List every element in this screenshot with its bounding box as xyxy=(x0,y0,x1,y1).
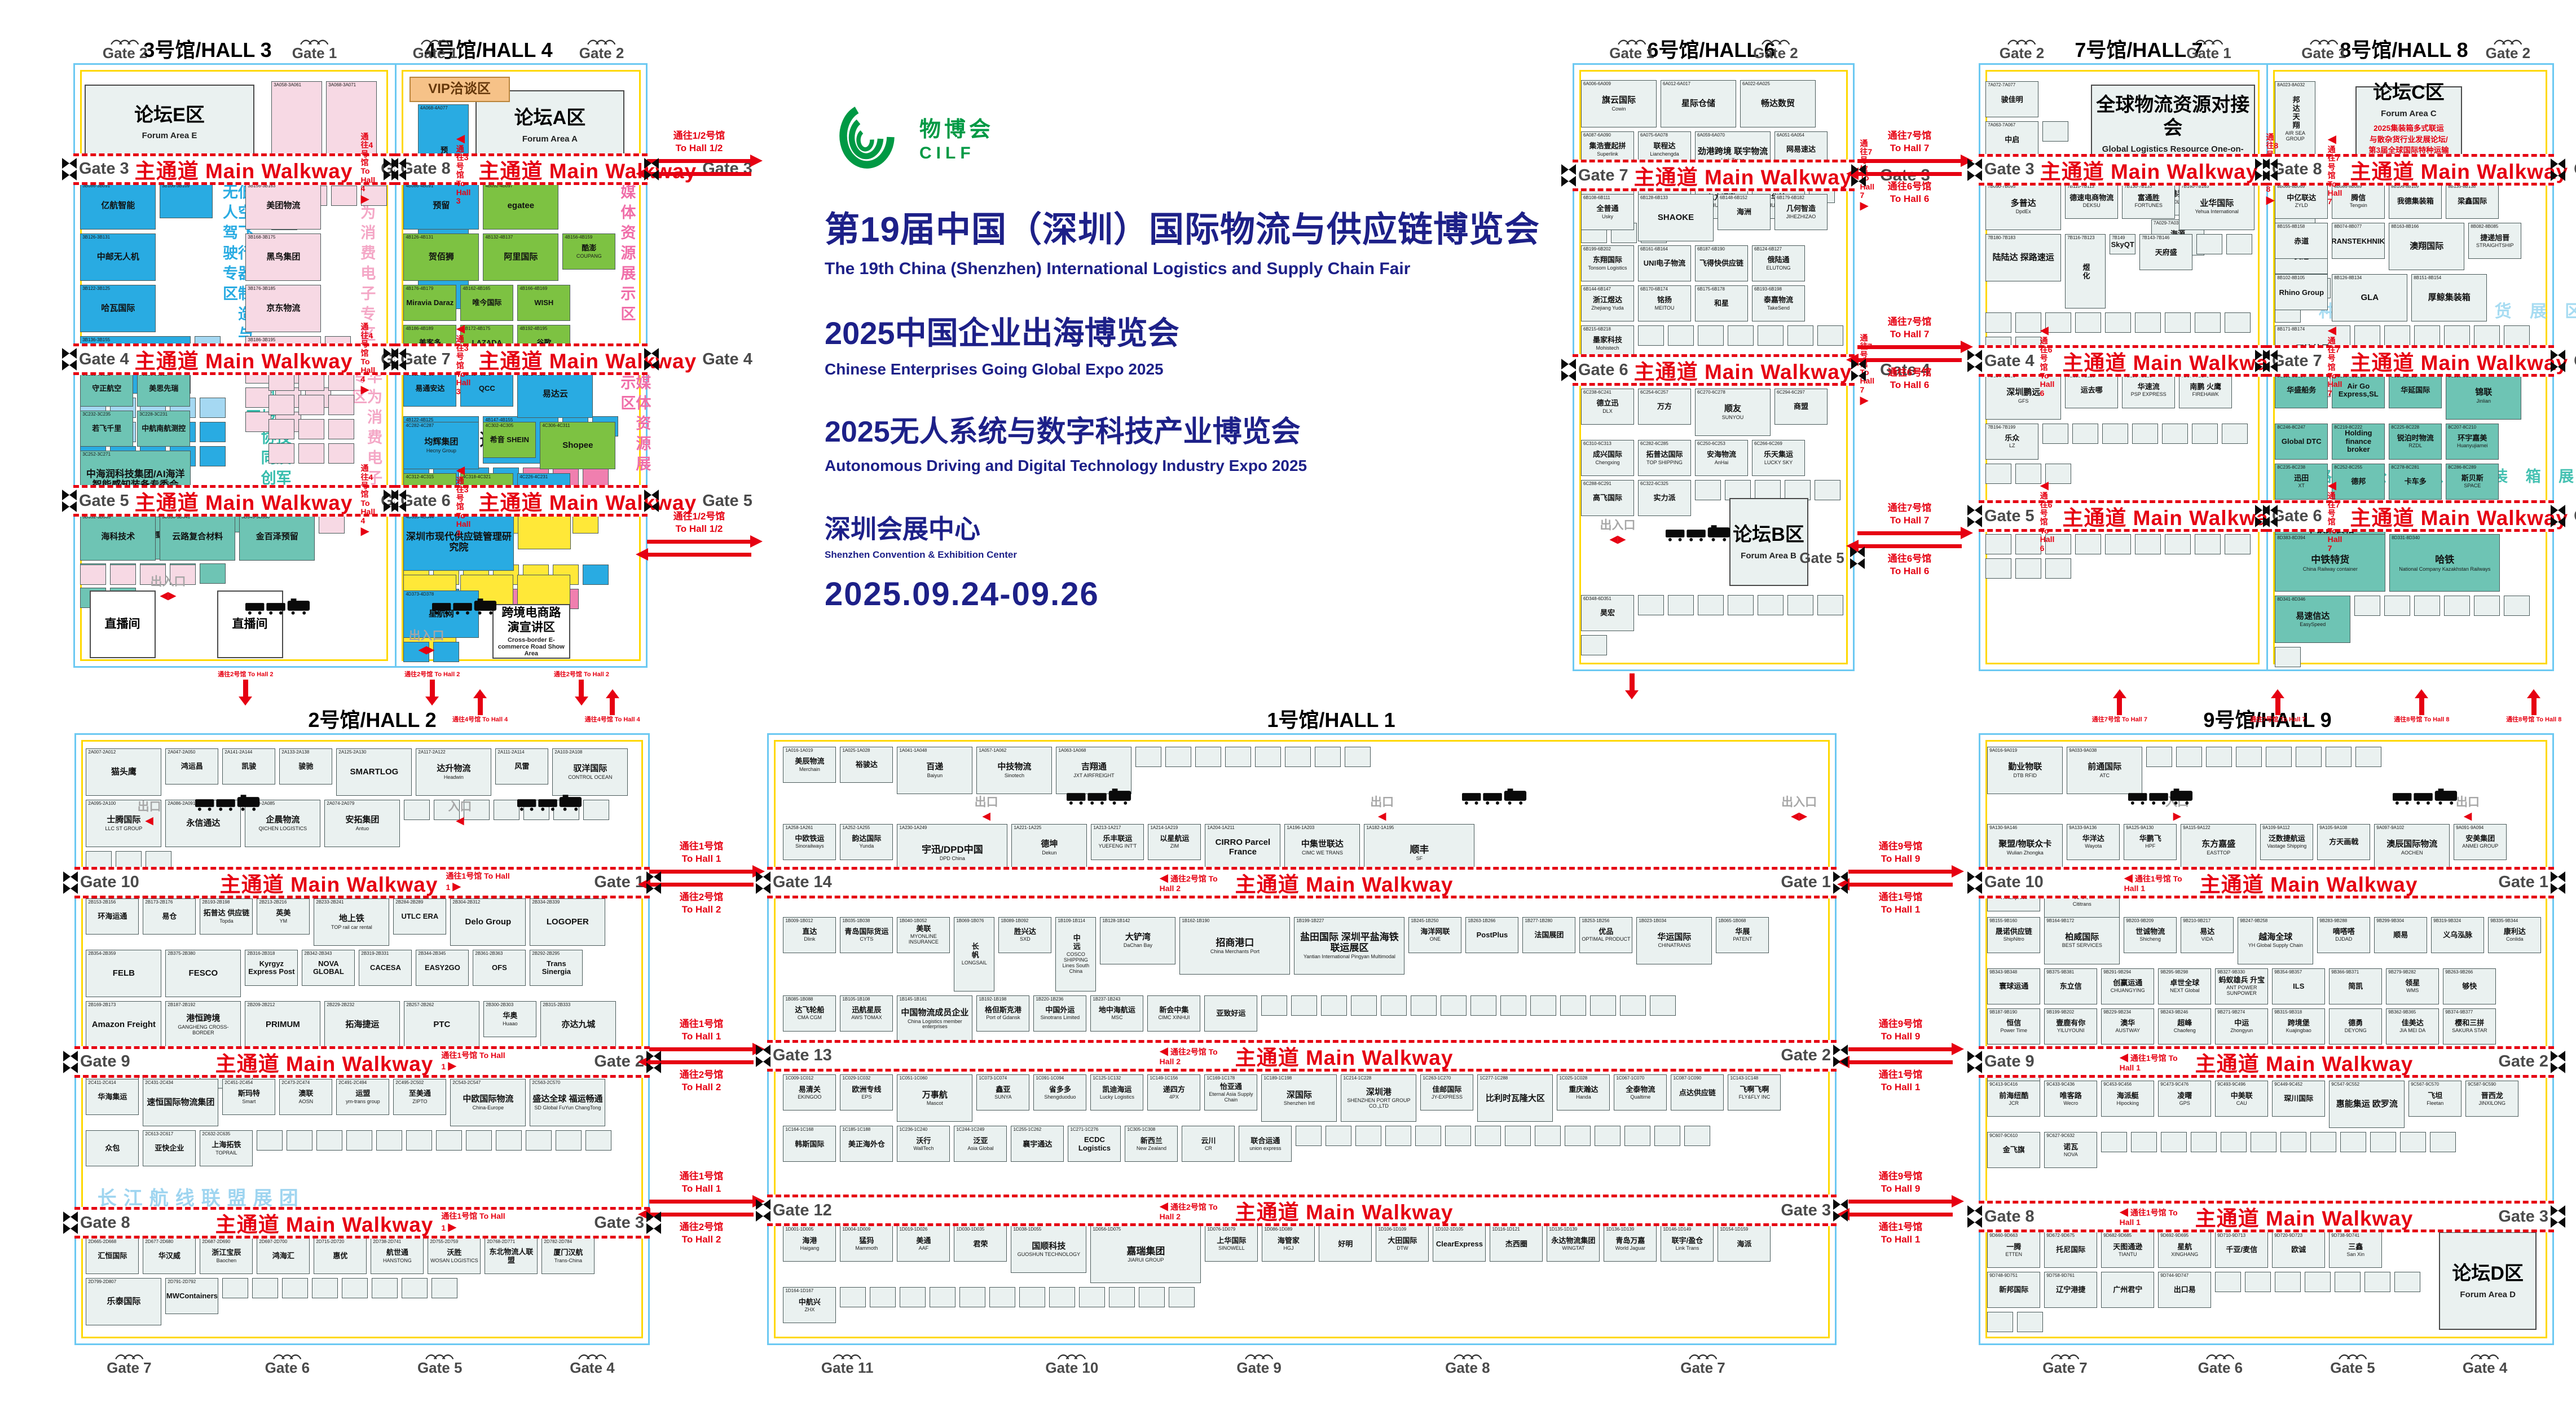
booth: 2B173-2B176易仓 xyxy=(143,898,196,935)
booth-code: 2B153-2B156 xyxy=(88,900,137,905)
booth-name: 义乌泓脉 xyxy=(2443,931,2472,940)
booth-name: 晋西龙 xyxy=(2481,1092,2503,1100)
walkway-gate-label: Gate 4 xyxy=(1979,352,2040,371)
booth-code: 1C277-1C288 xyxy=(1479,1076,1551,1081)
gate-label: Gate 5 xyxy=(417,1359,463,1377)
bowtie-gate-icon xyxy=(644,489,659,513)
booth: 9B279-9B282领星WMS xyxy=(2386,968,2439,1004)
booth-band: 9B155-9B160晟诺供应链ShipNitro9B164-9B172柏威国际… xyxy=(1987,917,2545,1046)
booth: 1C029-1C032欧洲专线EPS xyxy=(840,1074,893,1110)
booth-code: 1D154-1D159 xyxy=(1720,1227,1769,1232)
booth-code: 1B162-1B190 xyxy=(1182,919,1288,923)
booth-name: 深圳港 xyxy=(1366,1088,1392,1098)
booth xyxy=(1381,995,1407,1016)
booth-name-en: WOSAN LOGISTICS xyxy=(430,1258,478,1264)
gate-awning-icon xyxy=(2339,1349,2367,1359)
booth-name-en: OPTIMAL PRODUCT xyxy=(1582,937,1630,942)
booth xyxy=(1345,747,1371,767)
direction-arrow-icon xyxy=(647,540,751,544)
gate-awning-icon xyxy=(1454,1349,1482,1359)
booth xyxy=(2176,747,2202,767)
booth: 3C232-3C235若飞千里 xyxy=(80,411,133,447)
booth-name: 恒信 xyxy=(2006,1019,2021,1028)
booth: 2D782-2D784厦门汉航Trans-China xyxy=(541,1238,595,1274)
booth-code: 3B176-3B185 xyxy=(248,287,319,291)
gate-label: Gate 1 xyxy=(292,45,337,62)
booth-name: 天府盛 xyxy=(2155,249,2177,257)
booth-name: 鸿运昌 xyxy=(181,763,203,771)
booth-band: 1B009-1B012直达Dlink1B035-1B038青岛国际货运CYTS1… xyxy=(783,917,1820,1046)
main-walkway: Gate 3主通道 Main Walkway通往8号馆 To Hall 8 ▶G… xyxy=(1979,154,2266,186)
entrance-exit-label: 出入口◀▶ xyxy=(1781,793,1817,822)
booth-name: 欧诚 xyxy=(2291,1246,2306,1254)
exit-arrow-icon: ◀ xyxy=(145,816,153,826)
booth xyxy=(494,800,519,820)
booth-code: 1B237-1B243 xyxy=(1093,997,1142,1002)
zone-title: 论坛A区 xyxy=(514,107,586,130)
booth-code: 1C255-1C262 xyxy=(1013,1127,1062,1132)
walkway-gate-label: Gate 5 xyxy=(1979,507,2040,526)
booth-code: 8B151-8B154 xyxy=(2414,276,2485,280)
walkway-center: ◀ 通往6号馆 To Hall 6主通道 Main Walkway xyxy=(2040,479,2280,553)
bowtie-gate-icon xyxy=(63,1050,78,1077)
booth-name: GLA xyxy=(2361,293,2379,303)
bowtie-gate-icon xyxy=(756,871,770,894)
booth: 2D738-2D741航世通HANSTONG xyxy=(371,1238,424,1274)
booth xyxy=(585,1130,611,1151)
booth-code: 1B253-1B256 xyxy=(1582,919,1631,923)
main-walkway: Gate 8◀ 通往3号馆 To Hall 3主通道 Main WalkwayG… xyxy=(395,153,648,185)
booth-name: 澳辰国际物流 xyxy=(2386,840,2437,849)
bowtie-gate-icon xyxy=(2551,871,2565,894)
booth-name: 预留 xyxy=(433,201,450,211)
main-walkway-label: 主通道 Main Walkway xyxy=(2062,346,2280,376)
booth-name-en: ETTEN xyxy=(2006,1252,2023,1258)
gate-awning-icon xyxy=(578,1349,606,1359)
booth-code: 8C235-8C238 xyxy=(2277,465,2326,470)
booth-name-en: GFS xyxy=(2018,399,2029,404)
booth-name: 拓普达国际 xyxy=(1646,451,1683,459)
booth-name: 易清关 xyxy=(799,1086,821,1094)
booth-code: 1D001-1D005 xyxy=(785,1227,834,1232)
booth-code: 9D738-9D741 xyxy=(2331,1233,2380,1238)
booth: 9B247-9B258越海全球YH Global Supply Chain xyxy=(2238,917,2313,964)
booth xyxy=(2015,312,2041,333)
booth-name-en: Headwin xyxy=(444,775,464,781)
walkway-gate-label: Gate 8 xyxy=(1979,1208,2040,1226)
booth-name-en: MEITOU xyxy=(1655,306,1675,311)
booth xyxy=(870,1287,896,1307)
booth-code: 8C225-8C228 xyxy=(2391,425,2440,430)
entrance-exit-label: 出入口◀▶ xyxy=(409,627,444,655)
booth-name-en: NEXT Global xyxy=(2170,988,2199,994)
booth xyxy=(1079,1287,1105,1307)
booth-name: 易仓 xyxy=(162,913,177,921)
booth-code: 1A221-1A225 xyxy=(1014,826,1085,830)
booth-name: PostPlus xyxy=(1477,931,1508,940)
walkway-gate-label: Gate 9 xyxy=(1979,1052,2040,1071)
booth xyxy=(298,419,324,439)
booth: 1C149-1C156递四方4PX xyxy=(1147,1074,1200,1110)
booth-code: 9D720-9D723 xyxy=(2274,1233,2323,1238)
booth-code: 1A063-1A068 xyxy=(1058,748,1130,753)
bowtie-gate-icon xyxy=(756,1198,770,1222)
walkway-gate-label: Gate 5 xyxy=(73,492,135,510)
booth-name-en: QICHEN LOGISTICS xyxy=(259,826,307,832)
booth-name-en: SUNYA xyxy=(994,1095,1011,1100)
train-icon xyxy=(1462,788,1529,805)
booth-name-en: DPD China xyxy=(940,856,965,862)
booth: 9C567-9C570飞坦Fleetan xyxy=(2408,1081,2461,1117)
booth-name-en: YM xyxy=(280,919,288,924)
booth-code: 1C149-1C156 xyxy=(1150,1076,1199,1081)
booth-name-en: Shenzhen Intl xyxy=(1284,1101,1315,1107)
booth xyxy=(1695,480,1721,500)
booth-name: 百递 xyxy=(926,763,943,772)
booth xyxy=(989,1287,1015,1307)
booth: 7A072-7A077骏佳明 xyxy=(1985,81,2038,117)
zone-title: 论坛B区 xyxy=(1733,523,1804,547)
booth-name: 顺易 xyxy=(2393,931,2408,940)
bowtie-gate-icon xyxy=(646,1050,661,1074)
booth xyxy=(1590,995,1616,1016)
booth-code: 1D116-1D121 xyxy=(1492,1227,1541,1232)
hall-direction-annotation: 通往7号馆 To Hall 7通往6号馆 To Hall 6 xyxy=(1857,316,1962,391)
booth: 9A125-9A130华鹏飞HPF xyxy=(2124,824,2177,860)
walkway-center: 主通道 Main Walkway通往7号馆 To Hall 7 ▶ xyxy=(1634,334,1874,407)
booth-code: 2C613-2C617 xyxy=(145,1132,194,1136)
booth: 1D116-1D121杰西圈 xyxy=(1490,1226,1543,1262)
booth: 9B343-9B348寰球运通 xyxy=(1987,968,2040,1004)
booth: 9D744-9D747出口易 xyxy=(2158,1272,2211,1308)
booth: 2D677-2D680华汉威 xyxy=(143,1238,196,1274)
booth xyxy=(431,1278,457,1298)
booth-code: 2C411-2C414 xyxy=(88,1081,137,1085)
booth-name: 煜化 xyxy=(2081,263,2090,280)
bowtie-gate-icon xyxy=(2255,504,2270,528)
booth-name: 康利达 xyxy=(2504,928,2526,936)
booth-name-en: AUSTWAY xyxy=(2116,1028,2141,1034)
main-walkway-label: 主通道 Main Walkway xyxy=(215,1047,434,1077)
walkway-gate-label: Gate 3 xyxy=(1979,160,2040,179)
gate-label: Gate 2 xyxy=(579,45,624,62)
booth-name: 亚致好运 xyxy=(1216,1010,1245,1018)
booth-name: 以星航运 xyxy=(1160,835,1189,843)
booth xyxy=(245,412,271,432)
booth-name: 领星 xyxy=(2405,979,2420,988)
booth: 9B164-9B172柏威国际BEST SERVICES xyxy=(2044,917,2120,964)
booth-name-en: BEST SERVICES xyxy=(2062,943,2102,949)
hall-title: 7号馆/HALL 7 xyxy=(2075,34,2203,63)
direction-arrow-icon xyxy=(649,1213,754,1217)
booth-name: 中航南航测控 xyxy=(142,425,186,433)
walkway-gate-label: Gate 14 xyxy=(767,873,838,892)
gate-label: Gate 7 xyxy=(2042,1359,2088,1377)
booth-name-en: Conlida xyxy=(2506,937,2524,942)
booth xyxy=(1165,747,1191,767)
train-icon xyxy=(245,598,312,615)
walkway-center: ◀ 通往7号馆 To Hall 7主通道 Main Walkway xyxy=(2328,324,2568,398)
booth: 联合运通union express xyxy=(1239,1126,1292,1162)
gate-label: Gate 5 xyxy=(2330,1359,2375,1377)
booth-name: 华盛船务 xyxy=(2287,386,2316,395)
booth xyxy=(1291,995,1317,1016)
booth: 1C244-1C249泛亚Asia Global xyxy=(954,1126,1007,1162)
booth-code: 2D782-2D784 xyxy=(544,1240,593,1244)
booth: 6B124-6B127俄陆通ELUTONG xyxy=(1752,245,1805,281)
booth xyxy=(372,1278,398,1298)
gate-bottom: Gate 5 xyxy=(2330,1349,2375,1377)
booth: 1C091-1C094省多多Shengduoduo xyxy=(1033,1074,1086,1110)
hall-link-arrow: 通往2号馆 To Hall 2 xyxy=(214,670,276,706)
booth-code: 8B163-8B166 xyxy=(2391,224,2463,229)
booth: 1A258-1A261中欧铁运Sinorailways xyxy=(783,824,836,860)
main-walkway-label: 主通道 Main Walkway xyxy=(220,867,438,898)
booth-code: 9A105-9A108 xyxy=(2319,826,2368,830)
gate-label: Gate 1 xyxy=(2301,45,2346,62)
booth: 9B229-9B234澳华AUSTWAY xyxy=(2101,1008,2154,1045)
walkway-gate-label: Gate 13 xyxy=(767,1046,838,1065)
booth-code: 7A072-7A077 xyxy=(1988,83,2037,87)
booth-name-en: Mammoth xyxy=(855,1246,878,1251)
booth-name-en: AOSN xyxy=(299,1099,314,1105)
walkway-gate-label: Gate 12 xyxy=(767,1201,838,1220)
bowtie-gate-icon xyxy=(644,347,659,371)
main-walkway-label: 主通道 Main Walkway xyxy=(2195,1047,2414,1077)
booth xyxy=(2102,424,2128,444)
booth xyxy=(1654,1126,1680,1146)
walkway-direction-note: ◀ 通往1号馆 To Hall 1 xyxy=(2120,1051,2187,1072)
booth-code: 9C493-9C496 xyxy=(2217,1082,2266,1087)
booth-name: 全泰物流 xyxy=(1626,1086,1655,1094)
booth-band: 9D660-9D663一腾ETTEN9D672-9D675托尼国际9D682-9… xyxy=(1987,1232,2430,1327)
booth: 1B277-1B280法国展团 xyxy=(1522,917,1575,953)
booth-code: 1B192-1B198 xyxy=(979,997,1028,1002)
booth-name: 汇恒国际 xyxy=(98,1252,127,1261)
booth-name-en: Zhejiang Yuda xyxy=(1591,306,1623,311)
gate-bottom: Gate 9 xyxy=(1236,1349,1282,1377)
booth-code: 2A117-2A122 xyxy=(418,750,490,755)
booth-name: 省多多 xyxy=(1049,1086,1071,1094)
walkway-center: ◀ 通往2号馆 To Hall 2主通道 Main Walkway xyxy=(1160,1195,1454,1226)
booth-name-en: ATC xyxy=(2100,773,2110,779)
gate-label: Gate 1 xyxy=(1609,45,1654,62)
booth-name-en: Huanyujiamei xyxy=(2457,443,2488,449)
booth: 4B132-4B137阿里国际 xyxy=(483,233,558,281)
bowtie-gate-icon xyxy=(62,347,77,371)
booth-code: 2D791-2D792 xyxy=(168,1280,217,1284)
booth-name-en: RZDL xyxy=(2409,443,2423,449)
walkway-gate-label: Gate 8 xyxy=(74,1214,136,1232)
booth-code: 8D341-8D346 xyxy=(2277,597,2349,602)
booth: 2B375-2B380FESCO xyxy=(165,950,241,997)
gate-awning-icon xyxy=(2310,34,2338,45)
booth-name: ECDC Logistics xyxy=(1069,1136,1119,1152)
walkway-center: 主通道 Main Walkway通往1号馆 To Hall 1 ▶ xyxy=(215,1208,509,1238)
booth-code: 2B316-2B318 xyxy=(247,951,296,956)
booth-name: 骏驰 xyxy=(298,763,313,771)
booth xyxy=(2305,1272,2331,1292)
booth-code: 1D030-1D035 xyxy=(956,1227,1005,1232)
booth xyxy=(404,800,430,820)
booth: 2C495-2C502至美通ZIPTO xyxy=(393,1079,446,1115)
booth-code: 1C169-1C178 xyxy=(1206,1076,1256,1081)
booth-code: 2B334-2B339 xyxy=(532,900,604,905)
booth-name-en: LZ xyxy=(2009,443,2015,449)
walkway-gate-label: Gate 2 xyxy=(2493,1052,2554,1071)
booth-code: 2C632-2C635 xyxy=(202,1132,251,1136)
gate-bottom: Gate 7 xyxy=(2042,1349,2088,1377)
booth: 9B199-9B202壹鹿有你YILUYOUNI xyxy=(2044,1008,2097,1045)
gate-top: Gate 2 xyxy=(1753,34,1798,62)
booth xyxy=(2132,424,2158,444)
booth-name: 驭洋国际 xyxy=(573,764,607,774)
booth: 1D030-1D035君荣 xyxy=(954,1226,1007,1262)
booth-name: LOGOPER xyxy=(547,918,589,927)
booth-name: 旗云国际 xyxy=(1602,96,1636,105)
walkway-center: ◀ 通往1号馆 To Hall 1主通道 Main Walkway xyxy=(2120,1047,2414,1077)
booth: 4C212-4C215易通安达 xyxy=(403,371,456,407)
main-walkway: Gate 5主通道 Main Walkway通往4号馆 To Hall 4 ▶G… xyxy=(73,485,395,517)
booth xyxy=(1725,480,1751,500)
booth xyxy=(1135,747,1161,767)
booth xyxy=(2045,558,2071,579)
direction-text: 通往9号馆 To Hall 9 xyxy=(1879,1170,1922,1195)
booth-name: 中集世联达 xyxy=(1301,840,1344,849)
booth-name: 出口易 xyxy=(2174,1286,2196,1294)
booth-code: 1C025-1C028 xyxy=(1559,1076,1608,1081)
hall-link-arrow: 通往4号馆 To Hall 4 xyxy=(449,689,511,725)
booth-name: 猫头鹰 xyxy=(111,768,136,777)
booth: 1B109-1B114中远COSCO SHIPPING Lines South … xyxy=(1055,917,1096,991)
booth: 6B199-6B202东翔国际Tonsom Logistics xyxy=(1581,245,1634,281)
bowtie-gate-icon xyxy=(2551,349,2565,373)
walkway-direction-note: ◀ 通往3号馆 To Hall 3 xyxy=(456,464,471,537)
main-walkway-label: 主通道 Main Walkway xyxy=(478,344,697,374)
booth-name: 托尼国际 xyxy=(2056,1246,2085,1254)
booth xyxy=(1049,1287,1075,1307)
booth: 1A025-1A028裕骏达 xyxy=(840,747,893,783)
booth-name: 琛川国际 xyxy=(2284,1095,2313,1103)
booth-name: 泛数捷航运 xyxy=(2269,835,2305,843)
booth-name-en: Hipocking xyxy=(2117,1101,2139,1107)
train-icon xyxy=(432,598,499,615)
booth-name-en: JINXILONG xyxy=(2479,1101,2506,1107)
booth: 1B220-1B236中国外运Sinotrans Limited xyxy=(1033,995,1086,1032)
booth-name-en: Antuo xyxy=(356,826,369,832)
booth-name: 华洋达 xyxy=(2082,835,2104,843)
zone-subtitle: Forum Area B xyxy=(1741,551,1796,561)
booth-name-en: AOCHEN xyxy=(2401,850,2423,856)
main-walkway: Gate 7◀ 通往7号馆 To Hall 7主通道 Main WalkwayG… xyxy=(2266,345,2554,377)
booth: 9D758-9D761辽宁港捷 xyxy=(2044,1272,2097,1308)
booth: 9B299-9B304顺易 xyxy=(2374,917,2427,953)
booth-name-en: Shicheng xyxy=(2140,937,2161,942)
booth-name: 长帆 xyxy=(970,942,979,959)
gate-label: Gate 7 xyxy=(1680,1359,1725,1377)
booth xyxy=(2370,1132,2396,1152)
booth-name-en: ZIPTO xyxy=(412,1099,427,1105)
booth-name: 和星 xyxy=(1714,299,1729,308)
booth-code: 9A133-9A136 xyxy=(2069,826,2118,830)
booth-name: 国顺科技 xyxy=(1032,1242,1065,1251)
booth xyxy=(252,1278,278,1298)
booth-name-en: TOP SHIPPING xyxy=(1646,460,1683,466)
booth-code: 2A047-2A050 xyxy=(168,750,217,755)
event-logo: 物博会 CILF xyxy=(825,95,1558,179)
booth-name: 中国物流成员企业 xyxy=(901,1008,968,1018)
booth-name: 韩斯国际 xyxy=(795,1140,824,1149)
gate-bottom: Gate 6 xyxy=(265,1349,310,1377)
main-walkway: Gate 7◀ 通往3号馆 To Hall 3主通道 Main WalkwayG… xyxy=(395,343,648,375)
booth-code: 2A103-2A108 xyxy=(554,750,626,755)
booth-code: 1A016-1A019 xyxy=(785,748,834,753)
booth: 2A111-2A114风雷 xyxy=(495,748,548,785)
main-walkway-label: 主通道 Main Walkway xyxy=(135,486,353,516)
booth-code: 1C214-1C228 xyxy=(1343,1076,1415,1081)
booth xyxy=(1668,595,1694,615)
booth-name: 海派 xyxy=(1737,1240,1751,1249)
main-walkway-label: 主通道 Main Walkway xyxy=(1634,355,1852,385)
bowtie-gate-icon xyxy=(646,871,661,897)
bowtie-gate-icon xyxy=(1967,504,1982,528)
booth-band: 2C411-2C414华海集运2C431-2C434速恒国际物流集团2C451-… xyxy=(86,1079,638,1192)
walkway-direction-note: ◀ 通往7号馆 To Hall 7 xyxy=(2328,324,2342,398)
gate-label: Gate 1 xyxy=(413,45,458,62)
train-icon xyxy=(1067,788,1133,805)
booth-name-en: EPS xyxy=(861,1095,871,1100)
booth-code: 6A022-6A025 xyxy=(1742,82,1814,86)
walkway-direction-note: ◀ 通往1号馆 To Hall 1 xyxy=(2124,872,2192,893)
gate-label: Gate 10 xyxy=(1045,1359,1098,1377)
booth xyxy=(1985,464,2011,484)
booth-code: 8B102-8B105 xyxy=(2277,276,2326,280)
booth-name: 一腾 xyxy=(2006,1243,2021,1251)
booth: 1B089-1B092胜兴达SXD xyxy=(998,917,1051,953)
booth xyxy=(282,1278,308,1298)
booth-name: 海港 xyxy=(802,1237,817,1245)
booth xyxy=(1785,480,1811,500)
booth-code: 2C563-2C570 xyxy=(532,1081,604,1085)
booth-code: 9A097-9A102 xyxy=(2376,826,2448,830)
bowtie-gate-icon xyxy=(384,157,398,184)
booth: 1A057-1A062中技物流Sinotech xyxy=(976,747,1052,794)
main-walkway: Gate 5◀ 通往6号馆 To Hall 6主通道 Main WalkwayG… xyxy=(1979,500,2266,532)
booth-code: 9C433-9C436 xyxy=(2046,1082,2095,1087)
booth-code: 1C125-1C132 xyxy=(1093,1076,1142,1081)
booth: 4B176-4B179Miravia Daraz xyxy=(403,285,456,321)
booth-code: 2B342-2B343 xyxy=(304,951,353,956)
booth: 7B143-7B146天府盛 xyxy=(2139,234,2192,270)
direction-arrow-icon xyxy=(1857,345,1962,349)
booth: 9B271-9B274中运Zhongyun xyxy=(2215,1008,2268,1045)
gate-label: Gate 9 xyxy=(1236,1359,1282,1377)
booth-code: 9C587-9C590 xyxy=(2468,1082,2517,1087)
hall-link-arrow: 通往4号馆 To Hall 4 xyxy=(582,689,644,725)
booth: 2D715-2D720惠优 xyxy=(314,1238,367,1274)
booth xyxy=(80,565,106,585)
bowtie-gate-icon xyxy=(1967,1205,1982,1231)
direction-text: 通往2号馆 To Hall 2 xyxy=(680,1221,723,1246)
bowtie-gate-icon xyxy=(1561,358,1576,385)
booth-code: 9A130-9A146 xyxy=(1989,826,2061,830)
booth-code: 9B210-9B217 xyxy=(2183,919,2232,923)
booth-code: 6C266-6C269 xyxy=(1754,442,1803,446)
gate-top: Gate 1 xyxy=(413,34,458,62)
booth xyxy=(2042,424,2068,444)
booth-name-en: Vastage Shipping xyxy=(2267,844,2306,849)
hall-direction-annotation: 通往1号馆 To Hall 1通往2号馆 To Hall 2 xyxy=(649,1018,754,1094)
